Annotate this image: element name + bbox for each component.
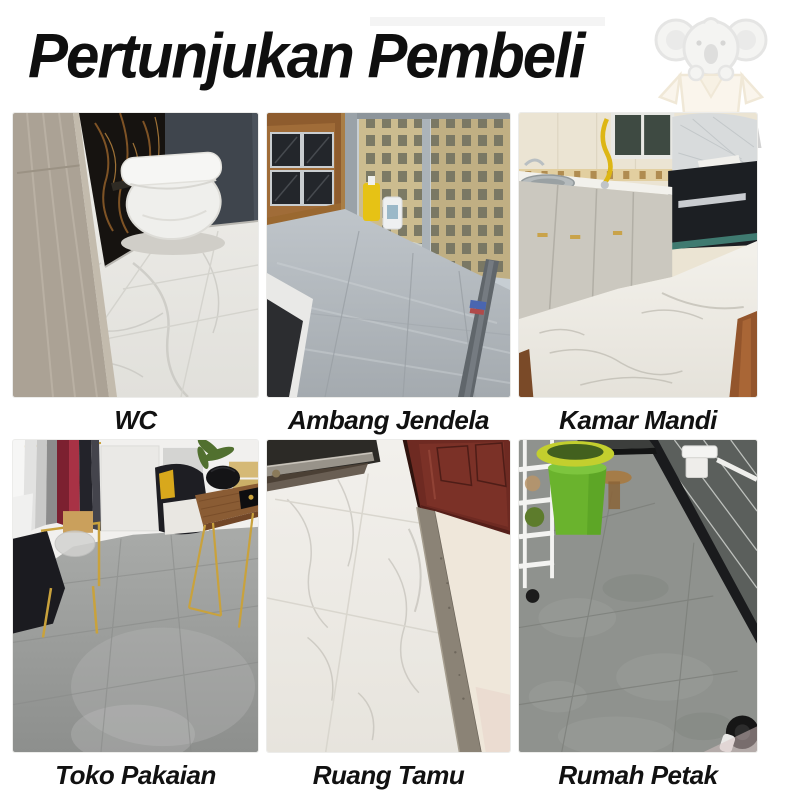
wc-photo — [13, 113, 258, 397]
faint-top-band — [370, 17, 605, 26]
flat-corridor-photo — [519, 440, 757, 752]
page-title: Pertunjukan Pembeli — [28, 20, 668, 92]
buyer-show-collage: Pertunjukan Pembeli A — [0, 0, 800, 800]
photo-caption: Rumah Petak — [519, 752, 757, 795]
koala-box-logo-icon — [646, 12, 776, 118]
gallery-item-toko-pakaian: Toko Pakaian — [13, 440, 258, 795]
photo-grid: WC — [13, 113, 757, 795]
kitchen-photo — [519, 113, 757, 397]
clothing-store-photo — [13, 440, 258, 752]
photo-caption: Ambang Jendela — [267, 397, 510, 440]
living-room-photo — [267, 440, 510, 752]
gallery-item-ruang-tamu: Ruang Tamu — [267, 440, 510, 795]
gallery-item-kamar-mandi: Kamar Mandi — [519, 113, 757, 440]
gallery-item-rumah-petak: Rumah Petak — [519, 440, 757, 795]
gallery-item-wc: WC — [13, 113, 258, 440]
gallery-item-ambang-jendela: Ambang Jendela — [267, 113, 510, 440]
photo-caption: Ruang Tamu — [267, 752, 510, 795]
photo-caption: Toko Pakaian — [13, 752, 258, 795]
photo-caption: Kamar Mandi — [519, 397, 757, 440]
window-sill-photo — [267, 113, 510, 397]
photo-caption: WC — [13, 397, 258, 440]
